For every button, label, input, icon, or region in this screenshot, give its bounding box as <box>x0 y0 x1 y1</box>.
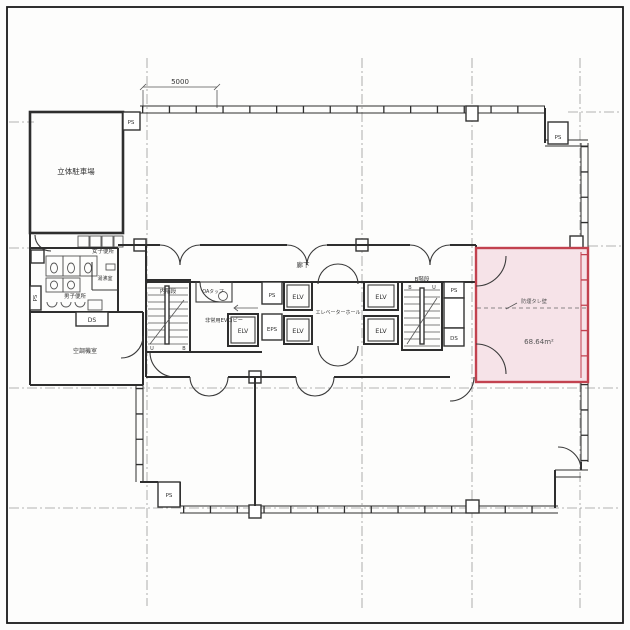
label-elv-1: ELV <box>292 293 304 301</box>
label-men-toilet: 男子便所 <box>64 292 87 300</box>
label-elv-emergency: ELV <box>238 328 249 335</box>
label-ps-top-left: PS <box>128 120 135 126</box>
label-hvac-room: 空調機室 <box>73 347 97 355</box>
stair-inner-mark-b: B <box>182 346 186 352</box>
label-elv-3: ELV <box>375 293 387 301</box>
highlight-room-area <box>476 248 588 382</box>
label-ps-top-right: PS <box>555 135 562 141</box>
hvac-room <box>121 336 143 358</box>
label-smoke-wall: 防煙タレ壁 <box>521 297 547 305</box>
label-elv-2: ELV <box>292 327 304 335</box>
stair-inner-mark-u: U <box>150 346 154 352</box>
label-corridor: 廊下 <box>297 260 311 269</box>
label-stair-b: B階段 <box>415 275 430 283</box>
stair-b-mark-u: U <box>432 285 436 291</box>
label-women-toilet: 女子便所 <box>92 247 115 255</box>
floor-plan-scan: 5000 <box>0 0 630 630</box>
toilet-block <box>30 248 143 385</box>
highlight-room <box>476 248 588 382</box>
label-ps-core: PS <box>269 293 276 299</box>
label-ev-lobby: 非常用EVロビー <box>205 316 243 324</box>
dimension-annotation: 5000 <box>140 78 220 108</box>
label-elevator-hall: エレベーターホール <box>315 309 360 316</box>
label-elv-4: ELV <box>375 327 387 335</box>
floor-plan-drawing: 5000 <box>0 0 630 630</box>
door-arc-notch <box>558 447 581 470</box>
label-oa-tap: OAタップ <box>202 288 224 295</box>
label-eps: EPS <box>267 327 278 333</box>
door-arc-hvac <box>121 336 143 358</box>
label-ps-left: PS <box>33 294 39 301</box>
label-highlight-area: 68.64m² <box>524 338 554 346</box>
label-ps-bottom-left: PS <box>166 493 173 499</box>
label-ds-left: DS <box>88 317 97 324</box>
label-parking: 立体駐車場 <box>57 166 95 176</box>
parking-room <box>30 112 140 251</box>
emergency-ev-lobby <box>196 282 258 311</box>
stair-b-mark-b: B <box>408 285 412 291</box>
label-ds-right: DS <box>450 336 458 342</box>
label-ps-right: PS <box>451 288 458 294</box>
label-kitchenette: 湯沸室 <box>97 275 112 282</box>
dimension-value: 5000 <box>171 78 189 86</box>
label-stair-inner: 内階段 <box>160 287 177 295</box>
